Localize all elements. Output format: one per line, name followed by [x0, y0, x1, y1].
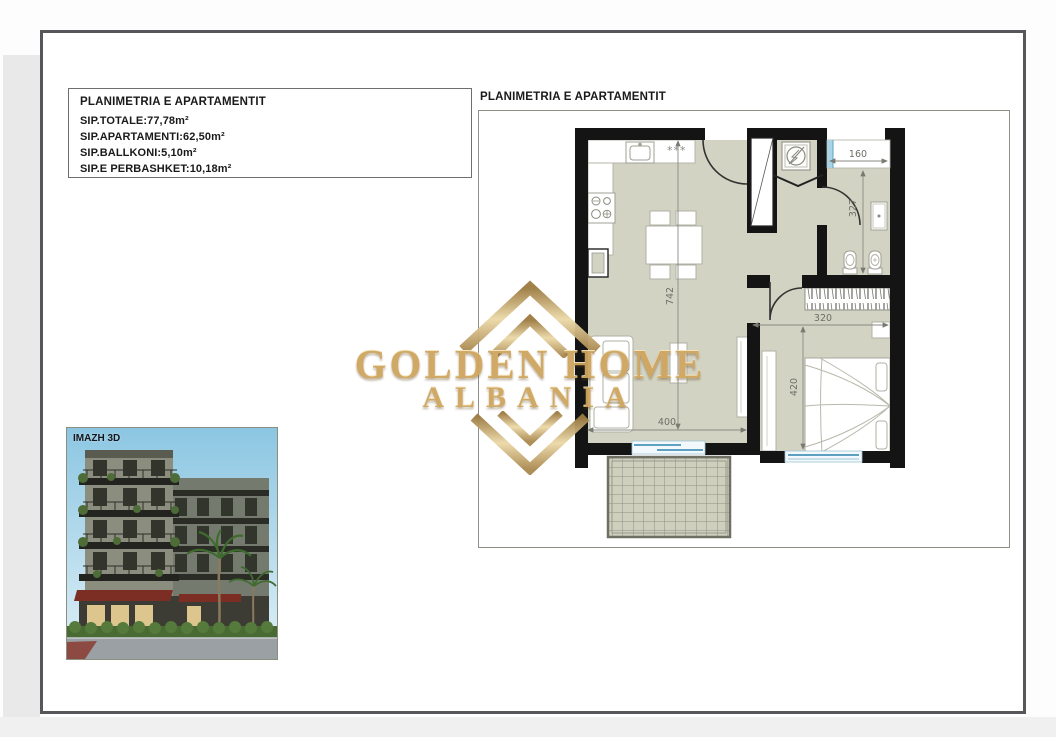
viewer-bottom-margin: [0, 717, 1056, 737]
photo-label: IMAZH 3D: [73, 433, 120, 444]
shaft: [751, 138, 773, 226]
dim-bath-width: 160: [849, 149, 867, 160]
plan-panel-title: PLANIMETRIA E APARTAMENTIT: [480, 91, 666, 103]
bedroom-window: [785, 451, 862, 462]
balcony-sliding-door: [632, 441, 705, 454]
info-line-sip-perbashket: SIP.E PERBASHKET:10,18m²: [80, 163, 231, 175]
bed: [805, 358, 890, 453]
wardrobe: [805, 288, 890, 310]
bidet-icon: [868, 251, 882, 274]
viewer-left-margin: [3, 55, 40, 737]
nightstand: [872, 322, 890, 338]
sink-icon: [626, 142, 654, 163]
info-line-sip-totale: SIP.TOTALE:77,78m²: [80, 115, 189, 127]
bedroom-dresser: [762, 351, 776, 451]
road: [67, 638, 277, 659]
boiler-icon: [782, 142, 810, 170]
info-line-sip-apartamenti: SIP.APARTAMENTI:62,50m²: [80, 131, 225, 143]
kitchen-mark: ***: [667, 144, 687, 157]
building-render-image: [67, 428, 277, 659]
sofa: [590, 336, 633, 432]
dim-bedroom-depth: 420: [789, 378, 800, 396]
pillow: [876, 363, 887, 391]
apartment-info-box: PLANIMETRIA E APARTAMENTIT SIP.TOTALE:77…: [68, 88, 472, 178]
dim-bedroom-width: 320: [814, 313, 832, 324]
stove-icon: [588, 193, 615, 223]
floor-plan-drawing: ***: [570, 125, 920, 545]
document-page: PLANIMETRIA E APARTAMENTIT SIP.TOTALE:77…: [40, 30, 1026, 714]
pillow: [876, 421, 887, 449]
wall-niche: [588, 249, 608, 277]
info-line-sip-ballkoni: SIP.BALLKONI:5,10m²: [80, 147, 197, 159]
toilet-icon: [843, 251, 857, 274]
dim-living-width: 400: [658, 417, 676, 428]
dim-bath-depth: 327: [848, 199, 859, 217]
dim-living-length: 742: [665, 287, 676, 305]
coffee-table: [670, 343, 687, 383]
building-3d-render: IMAZH 3D: [66, 427, 278, 660]
red-awning: [74, 590, 173, 601]
balcony-floor: [608, 457, 730, 537]
info-box-title: PLANIMETRIA E APARTAMENTIT: [80, 96, 266, 108]
washbasin-icon: [871, 202, 887, 230]
document-viewer: PLANIMETRIA E APARTAMENTIT SIP.TOTALE:77…: [0, 0, 1056, 737]
